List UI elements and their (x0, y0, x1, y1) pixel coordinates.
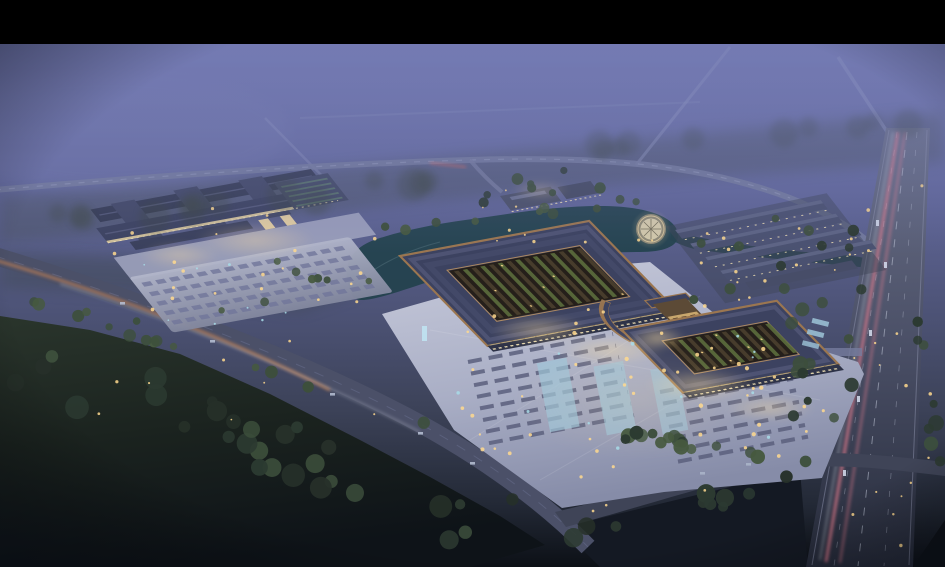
scene-svg (0, 0, 945, 567)
letterbox-top (0, 0, 945, 44)
vignette (0, 44, 945, 567)
rendering-canvas (0, 0, 945, 567)
